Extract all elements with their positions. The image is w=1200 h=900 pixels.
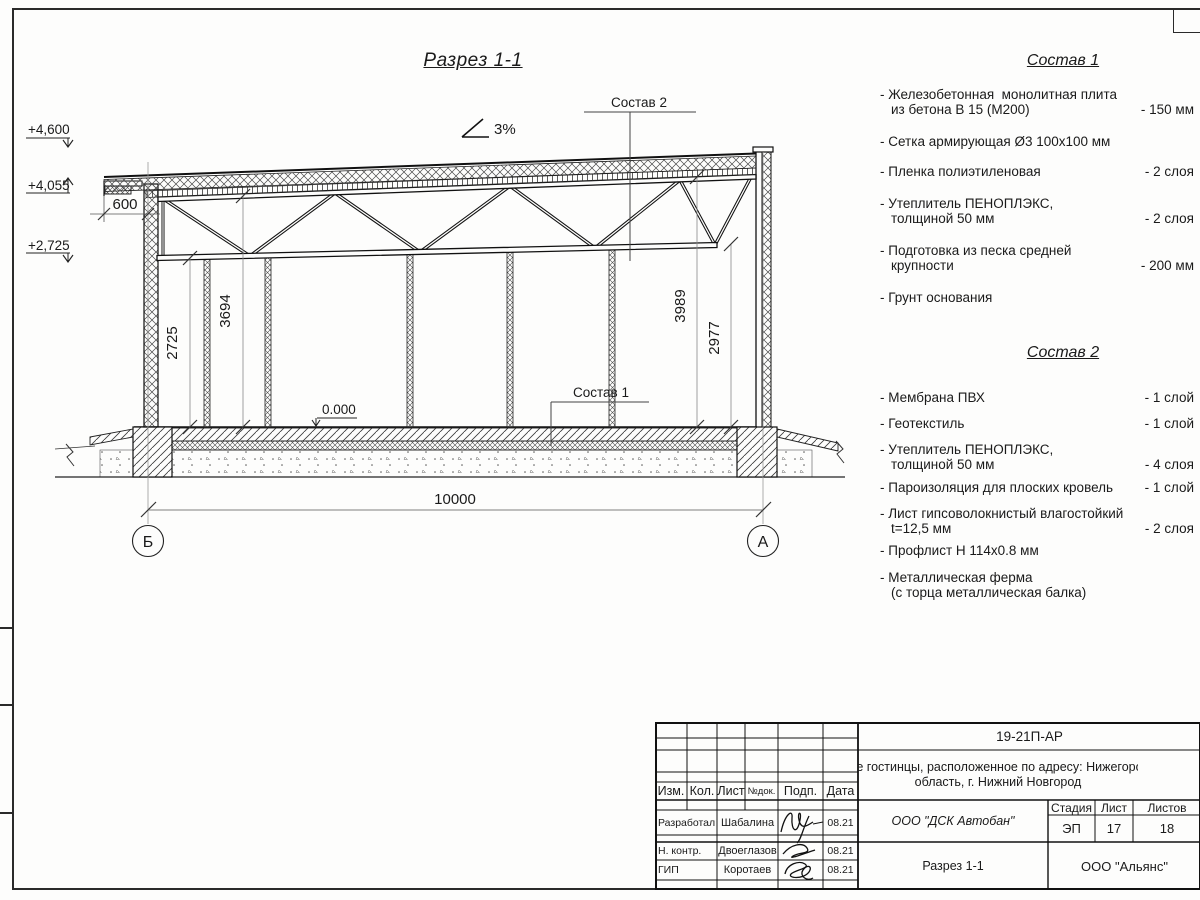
dim-vertical-3694: 3694	[217, 189, 250, 434]
slope-mark: 3%	[462, 119, 516, 138]
dim-span-value: 10000	[434, 491, 476, 508]
axis-bubble-b: Б	[133, 526, 164, 557]
floor-slab	[134, 427, 757, 450]
composition-1-title: Состав 1	[988, 52, 1138, 70]
list-item: - Утеплитель ПЕНОПЛЭКС, толщиной 50 мм -…	[880, 443, 1194, 472]
callout-roof-label: Состав 2	[611, 95, 667, 110]
view-name: Разрез 1-1	[858, 842, 1048, 890]
col-header-data: Дата	[823, 782, 858, 800]
stage-value: ЭП	[1048, 815, 1095, 842]
layer-value: - 4 слоя	[1141, 458, 1194, 473]
list-item: - Сетка армирующая Ø3 100х100 мм	[880, 135, 1194, 150]
dim-vertical-2977: 2977	[706, 237, 738, 434]
elevation-4600: +4,600	[26, 122, 73, 147]
layer-name: - Подготовка из песка средней крупности	[880, 244, 1071, 273]
level-0000-value: 0.000	[322, 402, 356, 417]
elevation-2725-value: +2,725	[28, 238, 70, 253]
list-item: - Грунт основания	[880, 291, 1194, 306]
layer-name: - Металлическая ферма (с торца металличе…	[880, 571, 1086, 600]
signature-role: Разработал	[655, 810, 717, 835]
layer-name: - Сетка армирующая Ø3 100х100 мм	[880, 135, 1110, 150]
layer-value: - 2 слоя	[1141, 212, 1194, 227]
sheets-label: Листов	[1133, 800, 1200, 815]
project-name: Здание гостинцы, расположенное по адресу…	[858, 750, 1138, 800]
list-item: - Профлист Н 114х0.8 мм	[880, 544, 1194, 559]
dim-3989-value: 3989	[672, 289, 689, 322]
slope-value: 3%	[494, 121, 516, 138]
axis-bubble-a: А	[748, 526, 779, 557]
layer-name: - Пароизоляция для плоских кровель	[880, 481, 1113, 496]
dim-span: 10000	[148, 491, 763, 510]
foundation-left	[133, 427, 172, 477]
elevation-4055: +4,055	[26, 178, 73, 193]
signature-name: Коротаев	[717, 860, 778, 880]
layer-name: - Утеплитель ПЕНОПЛЭКС, толщиной 50 мм	[880, 197, 1053, 226]
axis-label-b: Б	[143, 534, 154, 551]
layer-value: - 150 мм	[1137, 103, 1194, 118]
layer-name: - Лист гипсоволокнистый влагостойкий t=1…	[880, 507, 1123, 536]
company-name: ООО "Альянс"	[1048, 842, 1200, 890]
contractor-name: ООО "ДСК Автобан"	[858, 800, 1048, 842]
composition-2-title: Состав 2	[988, 344, 1138, 362]
dim-vertical-2725: 2725	[164, 251, 197, 434]
layer-value: - 2 слоя	[1141, 165, 1194, 180]
list-item: - Мембрана ПВХ - 1 слой	[880, 391, 1194, 406]
foundation-right	[737, 427, 777, 477]
layer-value: - 1 слой	[1141, 417, 1194, 432]
sheets-total: 18	[1133, 815, 1200, 842]
list-item: - Металлическая ферма (с торца металличе…	[880, 571, 1194, 600]
layer-name: - Утеплитель ПЕНОПЛЭКС, толщиной 50 мм	[880, 443, 1053, 472]
list-item: - Пароизоляция для плоских кровель - 1 с…	[880, 481, 1194, 496]
layer-name: - Железобетонная монолитная плита из бет…	[880, 88, 1117, 117]
dim-3694-value: 3694	[217, 294, 234, 327]
signature-date: 08.21	[823, 810, 858, 835]
list-item: - Железобетонная монолитная плита из бет…	[880, 88, 1194, 117]
layer-value: - 2 слоя	[1141, 522, 1194, 537]
elevation-4600-value: +4,600	[28, 122, 70, 137]
layer-value: - 1 слой	[1141, 391, 1194, 406]
dim-overhang-value: 600	[112, 196, 137, 213]
callout-floor-label: Состав 1	[573, 385, 629, 400]
title-block: Изм. Кол. Лист №док. Подп. Дата Разработ…	[655, 722, 1200, 890]
signature-role: Н. контр.	[655, 842, 717, 860]
project-name-line1: Здание гостинцы, расположенное по адресу…	[858, 760, 1138, 774]
list-item: - Подготовка из песка средней крупности …	[880, 244, 1194, 273]
apron-left	[90, 429, 133, 445]
elevation-4055-value: +4,055	[28, 178, 70, 193]
level-0000: 0.000	[312, 402, 357, 426]
col-header-kol: Кол.	[687, 782, 717, 800]
list-item: - Лист гипсоволокнистый влагостойкий t=1…	[880, 507, 1194, 536]
signature-name: Шабалина	[717, 810, 778, 835]
signature-date: 08.21	[823, 842, 858, 860]
list-item: - Геотекстиль - 1 слой	[880, 417, 1194, 432]
dim-2977-value: 2977	[706, 321, 723, 354]
dim-2725-value: 2725	[164, 326, 181, 359]
project-name-line2: область, г. Нижний Новгород	[915, 775, 1082, 789]
list-item: - Утеплитель ПЕНОПЛЭКС, толщиной 50 мм -…	[880, 197, 1194, 226]
composition-1: Состав 1 - Железобетонная монолитная пли…	[880, 52, 1194, 322]
signature-date: 08.21	[823, 860, 858, 880]
col-header-list: Лист	[717, 782, 745, 800]
composition-2: Состав 2 - Мембрана ПВХ - 1 слой - Геоте…	[880, 344, 1194, 614]
layer-name: - Геотекстиль	[880, 417, 967, 432]
layer-name: - Грунт основания	[880, 291, 992, 306]
sheet-number: 17	[1095, 815, 1133, 842]
stage-label: Стадия	[1048, 800, 1095, 815]
wall-left	[104, 181, 158, 427]
dim-vertical-3989: 3989	[672, 170, 704, 434]
axis-label-a: А	[758, 534, 769, 551]
sheet-label: Лист	[1095, 800, 1133, 815]
layer-value: - 1 слой	[1141, 481, 1194, 496]
drawing-sheet: { "colors": {"ink": "#1a1a1a", "paper": …	[0, 0, 1200, 900]
col-header-ndok: №док.	[745, 782, 778, 800]
signature-role: ГИП	[655, 860, 717, 880]
interior-posts	[204, 250, 615, 427]
elevation-2725: +2,725	[26, 238, 73, 262]
document-number: 19-21П-АР	[858, 722, 1200, 750]
layer-name: - Профлист Н 114х0.8 мм	[880, 544, 1039, 559]
layer-name: - Пленка полиэтиленовая	[880, 165, 1041, 180]
col-header-podp: Подп.	[778, 782, 823, 800]
list-item: - Пленка полиэтиленовая - 2 слоя	[880, 165, 1194, 180]
layer-value: - 200 мм	[1137, 259, 1194, 274]
col-header-izm: Изм.	[655, 782, 687, 800]
layer-name: - Мембрана ПВХ	[880, 391, 985, 406]
apron-right	[777, 429, 838, 451]
fold-mark	[0, 812, 12, 814]
signature-name: Двоеглазов	[717, 842, 778, 860]
